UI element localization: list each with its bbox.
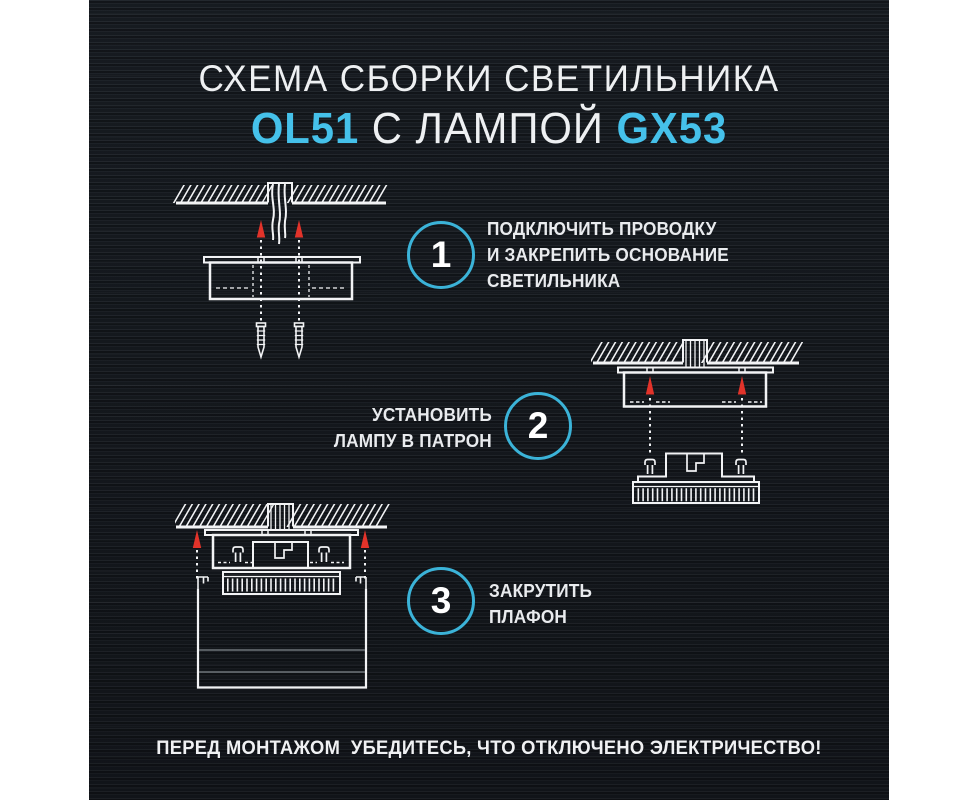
step-number: 2 (528, 405, 549, 447)
poster-canvas: СХЕМА СБОРКИ СВЕТИЛЬНИКА OL51 С ЛАМПОЙ G… (0, 0, 978, 800)
step-text-line: ЛАМПУ В ПАТРОН (334, 428, 492, 454)
warning-text: ПЕРЕД МОНТАЖОМ УБЕДИТЕСЬ, ЧТО ОТКЛЮЧЕНО … (113, 737, 865, 760)
plafond-hook-icon (198, 577, 208, 589)
step-text-line: ПОДКЛЮЧИТЬ ПРОВОДКУ (487, 216, 729, 242)
step-2-diagram (591, 336, 803, 508)
alignment-dotted-lines (261, 240, 299, 322)
step-circle-1: 1 (407, 221, 475, 289)
up-arrow-icon (193, 530, 369, 548)
step-text-line: ЗАКРУТИТЬ (489, 578, 592, 604)
base-plate (205, 530, 358, 568)
model-code: OL51 (251, 104, 359, 153)
screw-icon (295, 323, 304, 357)
step-text-line: СВЕТИЛЬНИКА (487, 268, 729, 294)
lamp-pin-icon (645, 460, 655, 475)
step-text-line: И ЗАКРЕПИТЬ ОСНОВАНИЕ (487, 242, 729, 268)
step-circle-2: 2 (504, 392, 572, 460)
step-number: 1 (431, 234, 452, 276)
step-2-text: УСТАНОВИТЬ ЛАМПУ В ПАТРОН (334, 402, 492, 454)
base-plate (618, 368, 773, 407)
lamp-pin-icon (233, 547, 243, 562)
gx53-lamp-icon (633, 454, 759, 504)
poster-panel: СХЕМА СБОРКИ СВЕТИЛЬНИКА OL51 С ЛАМПОЙ G… (89, 0, 889, 800)
plafond-hook-icon (356, 577, 366, 589)
lamp-pin-icon (736, 460, 746, 475)
up-arrow-icon (646, 376, 746, 395)
screw-icon (257, 323, 266, 357)
lamp-pin-icon (319, 547, 329, 562)
wires-icon (686, 341, 704, 367)
wires-icon (272, 184, 286, 244)
poster-title-line2: OL51 С ЛАМПОЙ GX53 (109, 104, 869, 154)
step-text-line: УСТАНОВИТЬ (334, 402, 492, 428)
step-1-text: ПОДКЛЮЧИТЬ ПРОВОДКУ И ЗАКРЕПИТЬ ОСНОВАНИ… (487, 216, 729, 294)
step-1-diagram (170, 176, 390, 368)
step-circle-3: 3 (407, 567, 475, 635)
step-text-line: ПЛАФОН (489, 604, 592, 630)
wires-icon (271, 505, 289, 531)
base-plate (204, 257, 360, 299)
lamp-code: GX53 (616, 104, 727, 153)
step-number: 3 (431, 580, 452, 622)
step-3-diagram (175, 498, 393, 694)
step-3-text: ЗАКРУТИТЬ ПЛАФОН (489, 578, 592, 630)
poster-title-line1: СХЕМА СБОРКИ СВЕТИЛЬНИКА (109, 58, 869, 100)
title-middle-text: С ЛАМПОЙ (359, 104, 616, 153)
